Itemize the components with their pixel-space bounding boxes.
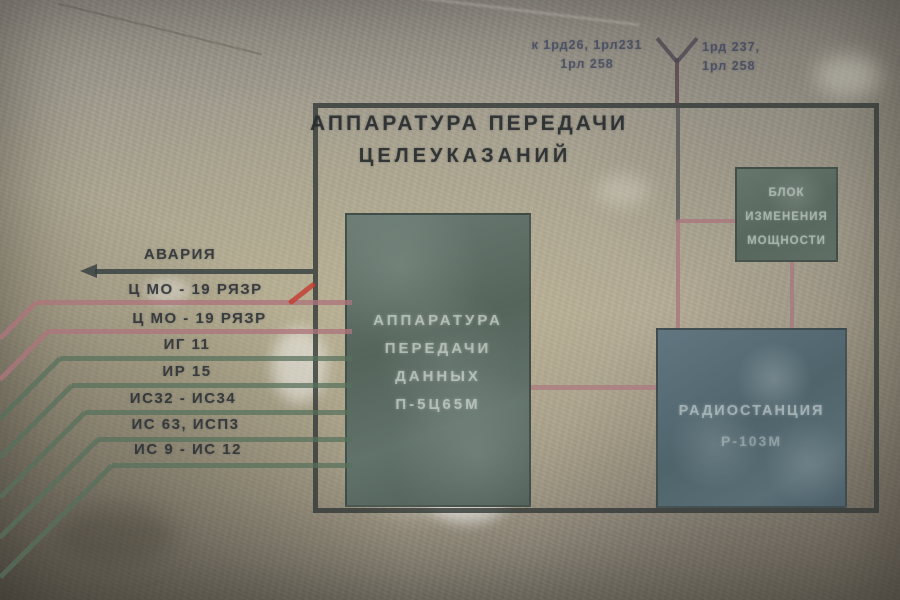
- diagram-title-line1: АППАРАТУРА ПЕРЕДАЧИ: [310, 112, 620, 136]
- apparatus-to-radio-line: [531, 385, 657, 390]
- diagram-title-line2: ЦЕЛЕУКАЗАНИЙ: [310, 145, 620, 168]
- diagram-title: АППАРАТУРА ПЕРЕДАЧИ ЦЕЛЕУКАЗАНИЙ: [310, 112, 620, 168]
- left-arrowhead-icon: [80, 264, 97, 278]
- power-block-to-radio-line: [790, 262, 794, 330]
- channel-line: [112, 463, 352, 468]
- radio-station-label-line1: РАДИОСТАНЦИЯ: [658, 330, 845, 426]
- channel-line: [85, 410, 352, 415]
- antenna-label-left-line1: к 1рд26, 1рл231: [512, 38, 662, 52]
- antenna-feed-line-upper: [676, 108, 680, 222]
- channel-label: ИС 63, ИСП3: [118, 416, 253, 433]
- wall-scratch: [381, 0, 639, 26]
- power-change-block-box: БЛОК ИЗМЕНЕНИЯ МОЩНОСТИ: [735, 167, 838, 262]
- data-apparatus-label-line2: ПЕРЕДАЧИ: [347, 335, 529, 363]
- channel-diagonal-line: [0, 301, 38, 341]
- channel-label: ИР 15: [142, 363, 232, 380]
- channel-diagonal-line: [0, 384, 74, 460]
- channel-line: [48, 329, 352, 334]
- concrete-wall-photo: АППАРАТУРА ПЕРЕДАЧИ ЦЕЛЕУКАЗАНИЙ к 1рд26…: [0, 0, 900, 600]
- channel-line: [95, 269, 313, 274]
- data-apparatus-box: АППАРАТУРА ПЕРЕДАЧИ ДАННЫХ П-5Ц65М: [345, 213, 531, 507]
- antenna-label-left: к 1рд26, 1рл231 1рл 258: [512, 38, 662, 71]
- power-block-branch-line: [678, 219, 736, 223]
- data-apparatus-label-line4: П-5Ц65М: [347, 391, 529, 419]
- power-block-label-line2: ИЗМЕНЕНИЯ: [737, 205, 836, 229]
- channel-diagonal-line: [0, 411, 87, 499]
- channel-line: [72, 383, 352, 388]
- paint-splotch: [815, 55, 880, 97]
- channel-line: [60, 356, 352, 361]
- channel-label: АВАРИЯ: [120, 246, 240, 263]
- antenna-label-right-line2: 1рл 258: [702, 59, 812, 73]
- wall-scratch: [58, 3, 262, 56]
- dark-stain: [55, 505, 175, 565]
- antenna-stem-line: [675, 58, 679, 105]
- channel-line: [36, 300, 352, 305]
- antenna-arrow-right-branch: [675, 37, 698, 63]
- antenna-label-right: 1рд 237, 1рл 258: [702, 40, 812, 73]
- channel-label: ИС32 - ИС34: [113, 390, 253, 407]
- data-apparatus-label-line1: АППАРАТУРА: [347, 307, 529, 335]
- power-block-label-line1: БЛОК: [737, 181, 836, 205]
- channel-label: ИГ 11: [142, 336, 232, 353]
- radio-station-box: РАДИОСТАНЦИЯ Р-103М: [656, 328, 847, 508]
- antenna-label-left-line2: 1рл 258: [512, 57, 662, 71]
- power-block-label-line3: МОЩНОСТИ: [737, 229, 836, 253]
- channel-label: Ц МО - 19 РЯЗР: [118, 281, 273, 298]
- data-apparatus-label-line3: ДАННЫХ: [347, 363, 529, 391]
- antenna-label-right-line1: 1рд 237,: [702, 40, 812, 54]
- channel-label: ИС 9 - ИС 12: [123, 441, 253, 458]
- radio-station-label-line2: Р-103М: [658, 426, 845, 456]
- antenna-feed-line-lower: [676, 220, 680, 330]
- channel-label: Ц МО - 19 РЯЗР: [122, 310, 277, 327]
